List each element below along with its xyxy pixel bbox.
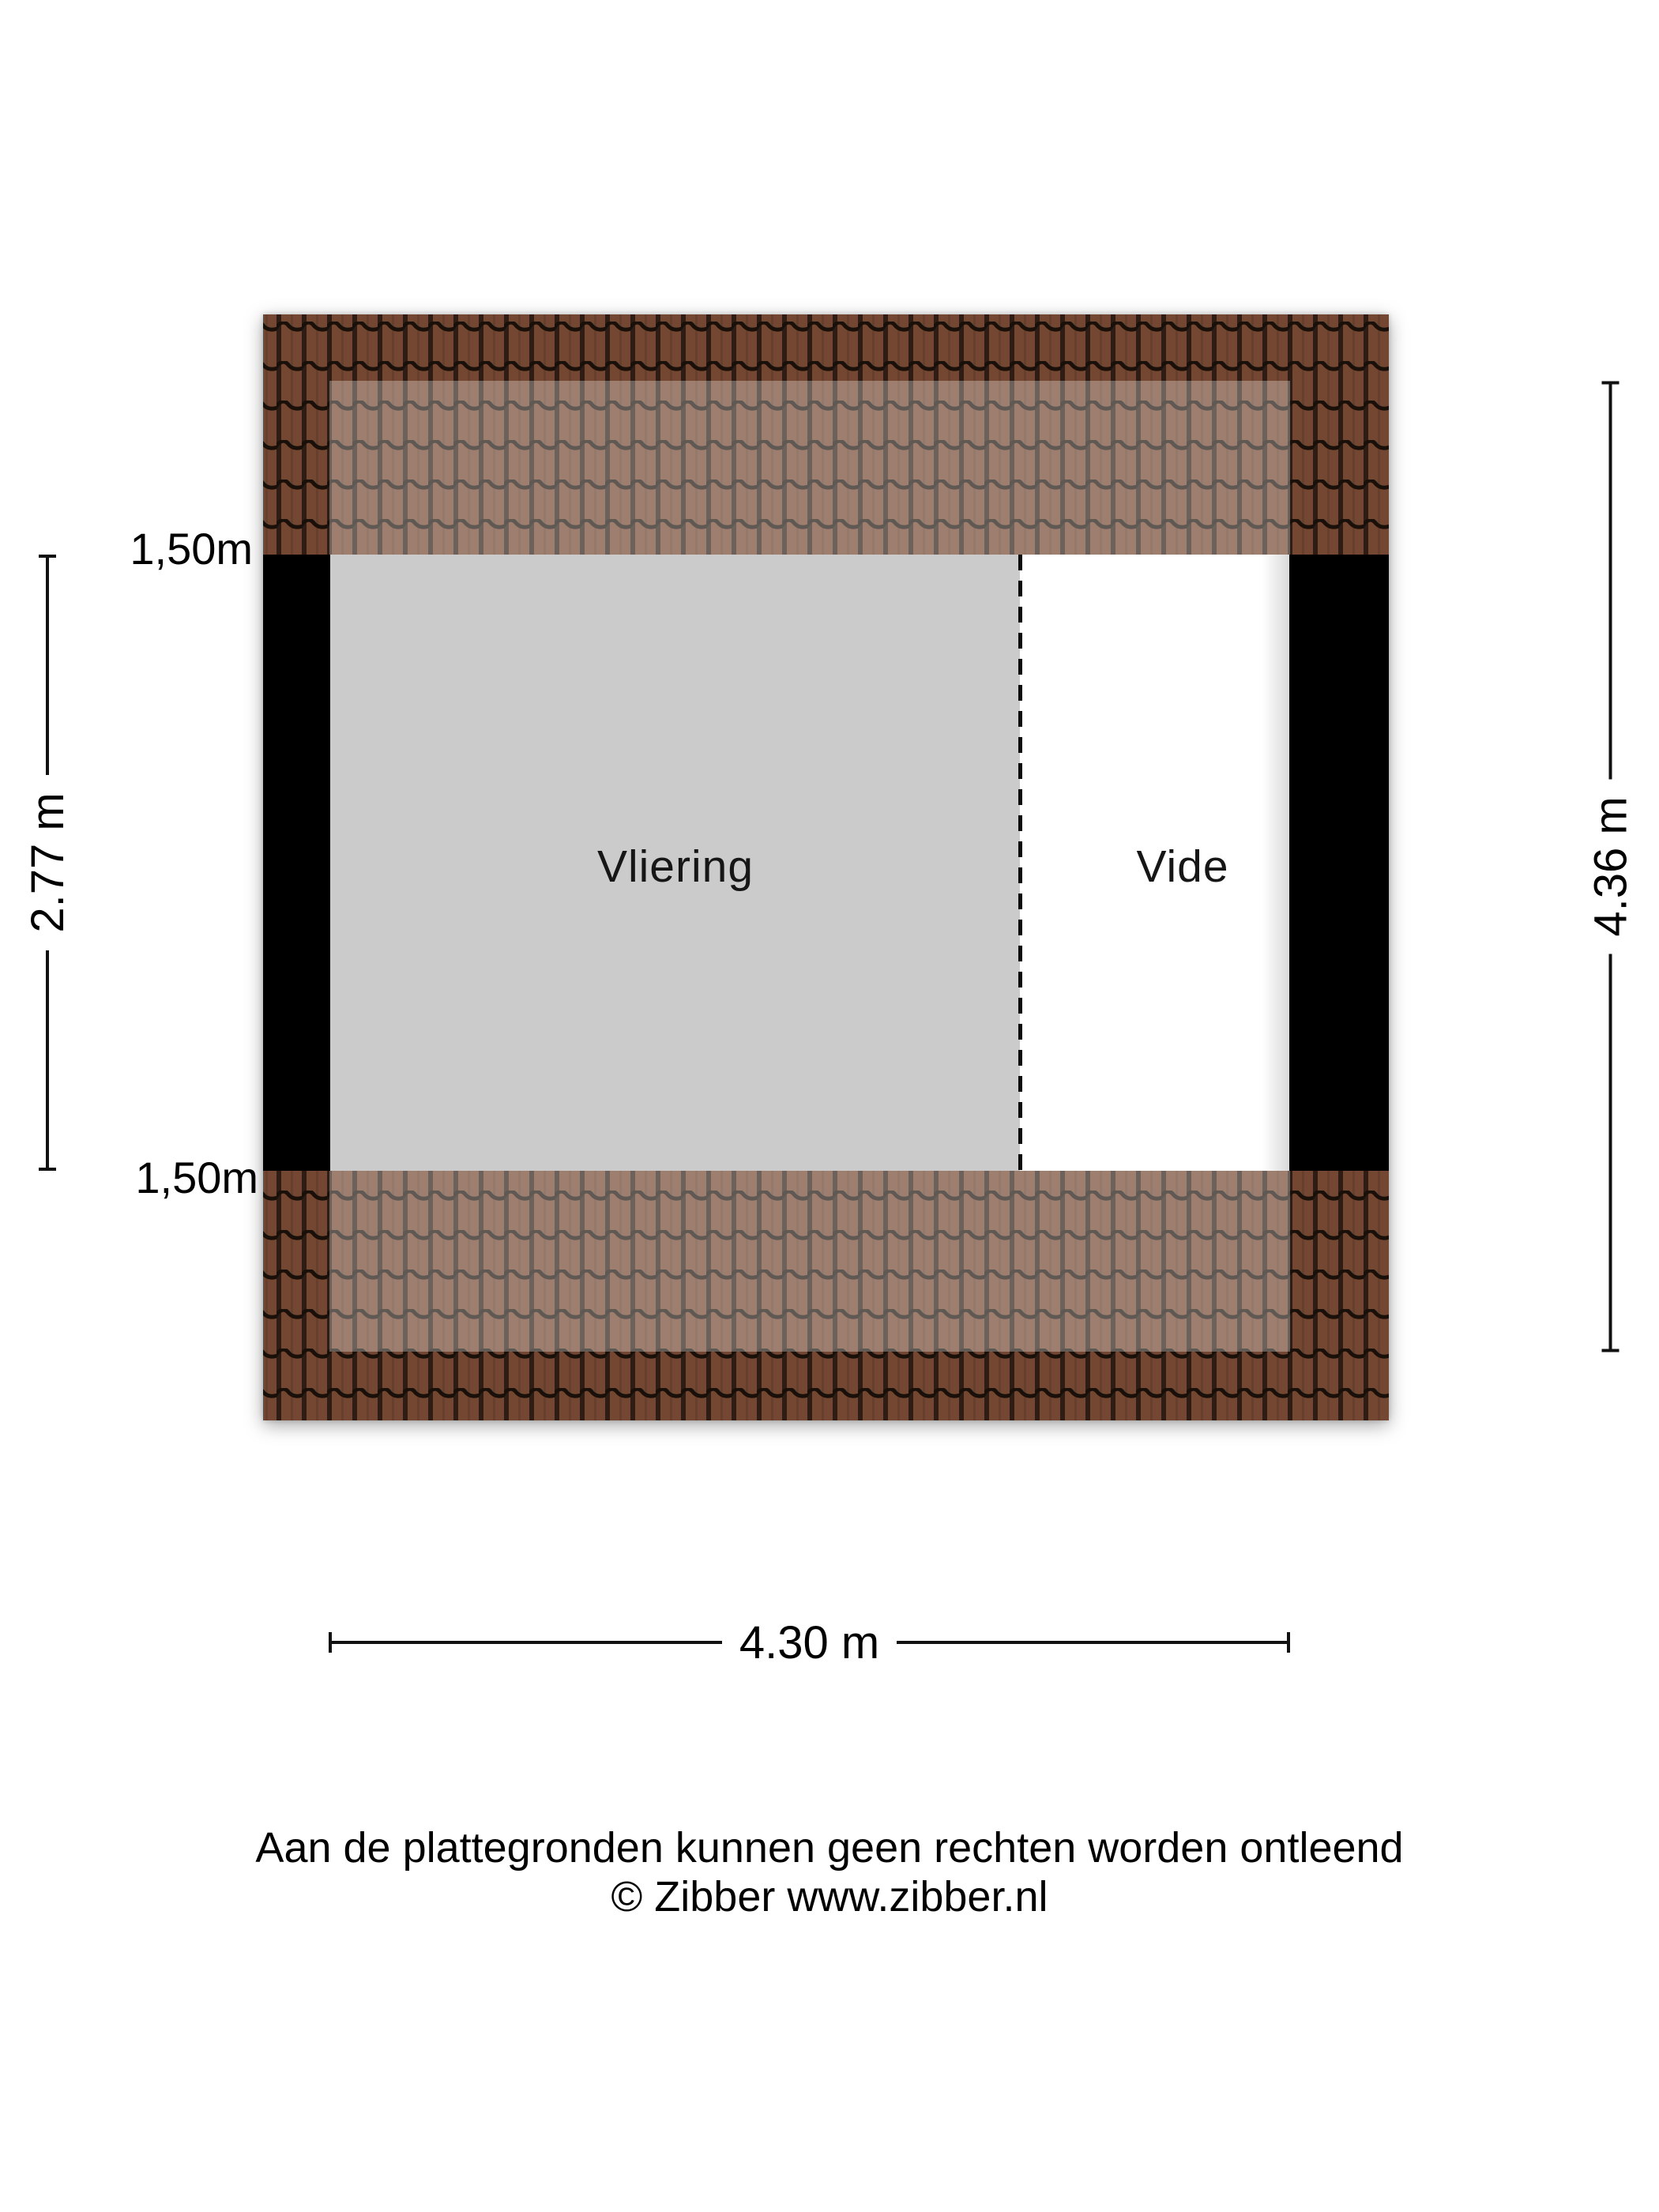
wall-left [263, 555, 330, 1171]
roof-highlight-top [329, 381, 1290, 555]
roof-highlight-bottom [329, 1171, 1290, 1352]
dim-tick [1602, 1349, 1619, 1352]
dim-line [46, 558, 49, 775]
dim-line [46, 950, 49, 1168]
room-label-vliering: Vliering [597, 841, 754, 893]
height-marker-bottom: 1,50m [135, 1152, 258, 1203]
room-label-vide: Vide [1136, 841, 1228, 893]
dimension-left: 2.77 m [22, 555, 73, 1171]
dim-tick [39, 1168, 56, 1171]
dimension-right: 4.36 m [1586, 382, 1636, 1352]
dim-label-bottom: 4.30 m [739, 1616, 879, 1669]
height-marker-top: 1,50m [130, 523, 253, 574]
dim-tick [1602, 381, 1619, 384]
footer: Aan de plattegronden kunnen geen rechten… [0, 1823, 1659, 1921]
dim-label-left: 2.77 m [21, 792, 74, 932]
footer-copyright: © Zibber www.zibber.nl [0, 1872, 1659, 1921]
dim-line [1609, 384, 1612, 779]
dim-line [1609, 954, 1612, 1349]
dim-line [897, 1641, 1287, 1644]
room-divider-dashed [1018, 555, 1022, 1171]
dim-tick [1287, 1632, 1290, 1653]
footer-disclaimer: Aan de plattegronden kunnen geen rechten… [0, 1823, 1659, 1872]
floorplan-page: Vliering Vide 1,50m 1,50m 2.77 m 4.36 m … [0, 0, 1659, 2212]
dimension-bottom: 4.30 m [329, 1617, 1290, 1668]
floorplan: Vliering Vide [263, 314, 1389, 1420]
wall-right [1289, 555, 1389, 1171]
dim-tick [39, 555, 56, 558]
dim-label-right: 4.36 m [1584, 796, 1637, 936]
dim-line [332, 1641, 722, 1644]
